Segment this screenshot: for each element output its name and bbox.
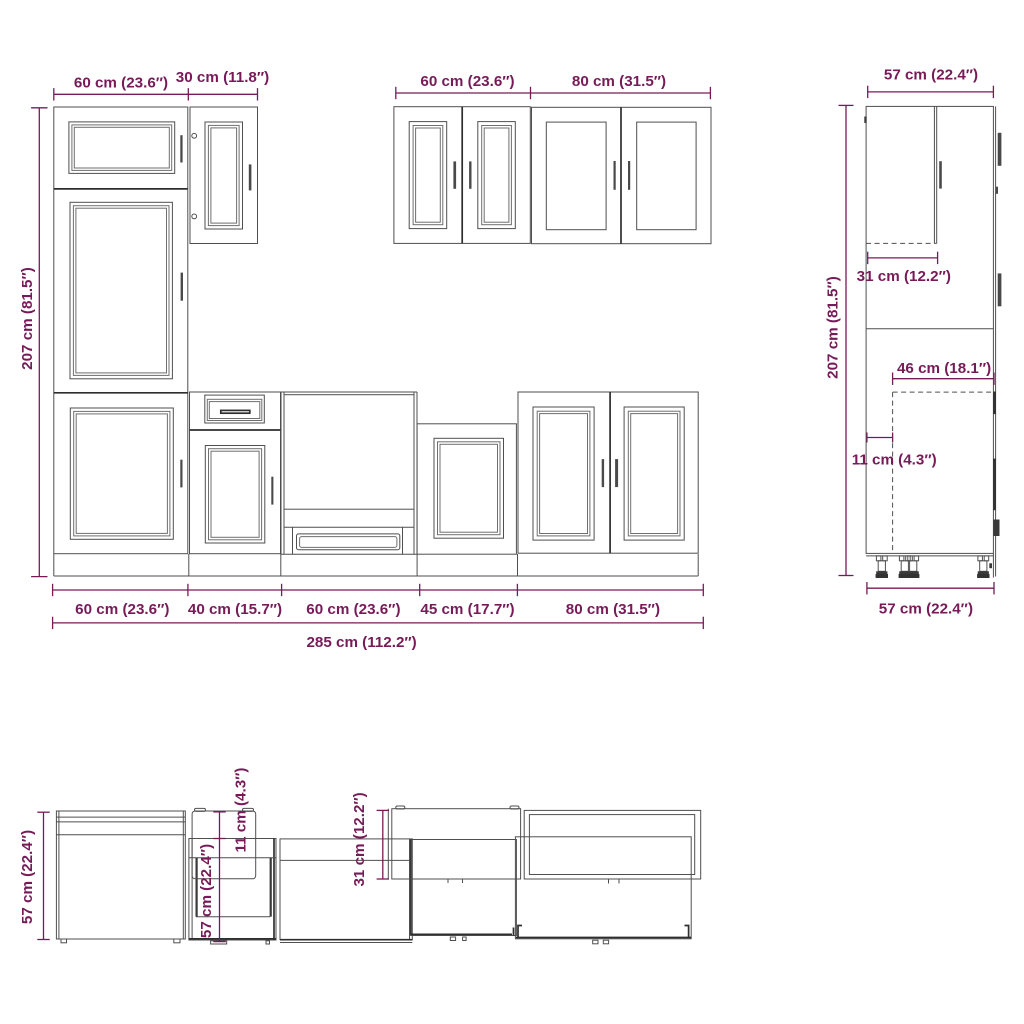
svg-text:60 cm (23.6″): 60 cm (23.6″) <box>306 601 400 618</box>
svg-text:46 cm (18.1″): 46 cm (18.1″) <box>897 360 991 377</box>
svg-text:57 cm (22.4″): 57 cm (22.4″) <box>879 600 973 617</box>
svg-text:60 cm (23.6″): 60 cm (23.6″) <box>420 73 514 90</box>
svg-text:45 cm (17.7″): 45 cm (17.7″) <box>420 601 514 618</box>
svg-text:80 cm (31.5″): 80 cm (31.5″) <box>566 601 660 618</box>
svg-text:30 cm (11.8″): 30 cm (11.8″) <box>176 69 269 86</box>
svg-text:57 cm (22.4″): 57 cm (22.4″) <box>19 830 36 924</box>
svg-text:31 cm (12.2″): 31 cm (12.2″) <box>351 792 368 886</box>
svg-text:40 cm (15.7″): 40 cm (15.7″) <box>188 601 282 618</box>
svg-text:60 cm (23.6″): 60 cm (23.6″) <box>74 74 168 91</box>
svg-text:207 cm (81.5″): 207 cm (81.5″) <box>825 276 842 379</box>
svg-text:11 cm (4.3″): 11 cm (4.3″) <box>233 768 250 853</box>
svg-text:11 cm (4.3″): 11 cm (4.3″) <box>852 451 937 468</box>
svg-text:207 cm (81.5″): 207 cm (81.5″) <box>19 267 36 370</box>
svg-text:57 cm (22.4″): 57 cm (22.4″) <box>884 67 978 84</box>
svg-text:57 cm (22.4″): 57 cm (22.4″) <box>198 844 215 938</box>
svg-text:80 cm (31.5″): 80 cm (31.5″) <box>572 73 666 90</box>
svg-text:285 cm (112.2″): 285 cm (112.2″) <box>306 634 416 651</box>
svg-text:31 cm (12.2″): 31 cm (12.2″) <box>857 268 951 285</box>
svg-text:60 cm (23.6″): 60 cm (23.6″) <box>75 601 169 618</box>
